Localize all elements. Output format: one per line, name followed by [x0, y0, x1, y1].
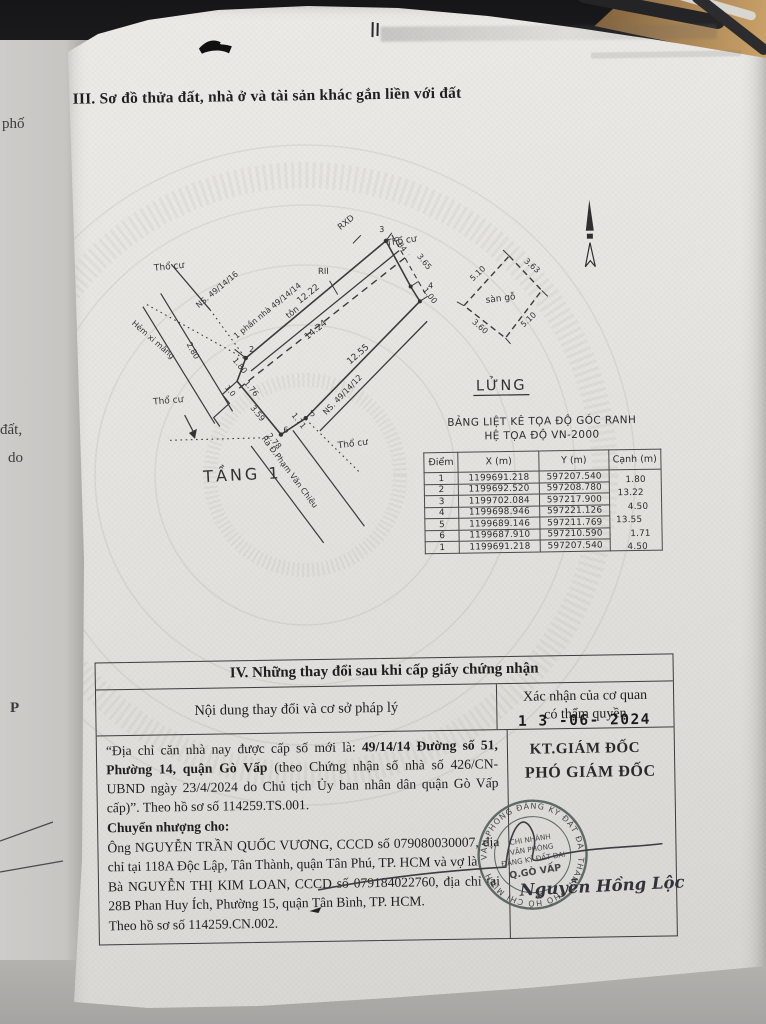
point-number: 2: [249, 345, 254, 354]
column-header: X (m): [458, 451, 539, 472]
pen-tick-marks: [371, 22, 383, 38]
transferee-husband: Ông NGUYỄN TRẦN QUỐC VƯƠNG, CCCD số 0790…: [107, 832, 500, 876]
measure-label: 1.0: [223, 383, 238, 398]
address-change-paragraph: “Địa chỉ căn nhà nay được cấp số mới là:…: [106, 735, 499, 817]
paragraph-text: “Địa chỉ căn nhà nay được cấp số mới là:: [106, 739, 362, 758]
measure-label: 3.59: [248, 404, 266, 424]
cell-y: 597207.540: [540, 539, 610, 552]
cell-point: 6: [425, 530, 459, 542]
signer-title-line2: PHÓ GIÁM ĐỐC: [496, 762, 684, 783]
measure-label: 3.60: [470, 317, 489, 335]
cell-y: 597217.900: [540, 493, 610, 506]
boundary-code-label: RXD: [336, 213, 357, 233]
street-label: Ra Đ.Phạm Văn Chiêu: [259, 434, 320, 511]
measure-label: 2.80: [185, 341, 201, 361]
alley-label: Hẻm xi măng: [130, 318, 177, 361]
cell-x: 1199689.146: [459, 517, 540, 530]
measure-label: 12.22: [295, 283, 321, 307]
mezzanine-floor-label: sàn gỗ: [485, 291, 517, 306]
column-header-content: Nội dung thay đổi và cơ sở pháp lý: [96, 684, 498, 735]
land-label: Thổ cư: [336, 437, 370, 452]
measure-label: 5.10: [519, 310, 538, 329]
measure-label: 5.10: [468, 264, 487, 283]
measure-label: 14.24: [303, 318, 330, 342]
edge-length: 13.55: [616, 515, 642, 525]
date-stamp: 1 3 -06- 2024: [500, 711, 668, 730]
roof-material-label: tôn: [284, 304, 302, 321]
signer-title-line1: KT.GIÁM ĐỐC: [496, 739, 674, 759]
measure-label: 0.84: [391, 235, 409, 254]
cell-y: 597221.126: [540, 505, 610, 518]
mezzanine-outline: [456, 249, 549, 395]
coordinate-table: Điểm X (m) Y (m) Cạnh (m) 1 1199691.218 …: [423, 449, 663, 554]
house-part-label: 1 phần nhà 49/14/14: [231, 280, 303, 340]
cell-x: 1199698.946: [459, 506, 540, 519]
cell-y: 597208.780: [539, 482, 609, 495]
measure-label: 2.78: [265, 431, 283, 451]
cell-x: 1199702.084: [459, 494, 540, 507]
cell-point: 2: [424, 484, 458, 496]
measure-label: 1.76: [242, 379, 260, 399]
measure-label: 1.00: [421, 286, 439, 306]
cell-y: 597207.540: [539, 470, 609, 483]
edge-length: 13.22: [618, 488, 644, 498]
scan-smudge: [381, 24, 717, 42]
cell-point: 1: [424, 473, 458, 485]
cell-edge-lengths: 1.80 13.22 4.50 13.55 1.71 4.50: [609, 469, 663, 550]
measure-label: 3.63: [522, 256, 541, 274]
neighbor-house-label: NS. 49/14/12: [321, 373, 364, 417]
edge-length: 4.50: [627, 542, 648, 552]
point-number: 3: [379, 225, 384, 234]
cell-y: 597210.590: [540, 528, 610, 541]
floor1-plot-lines: [142, 232, 432, 545]
land-label: Thổ cư: [385, 233, 419, 249]
coordinate-table-block: BẢNG LIỆT KÊ TỌA ĐỘ GÓC RANH HỆ TỌA ĐỘ V…: [419, 414, 667, 555]
cell-x: 1199691.218: [459, 540, 540, 553]
ink-mark: [199, 40, 232, 54]
change-content-text: “Địa chỉ căn nhà nay được cấp số mới là:…: [97, 730, 511, 945]
mezzanine-caption: LỬNG: [476, 376, 527, 395]
scanned-document-photo: phố đất, do P III. Sơ đồ thửa đất, nhà ở…: [0, 0, 766, 1024]
land-label: Thổ cư: [152, 394, 185, 408]
measure-label: 1.80: [231, 356, 249, 376]
cell-y: 597211.769: [540, 516, 610, 529]
transferee-wife: Bà NGUYỄN THỊ KIM LOAN, CCCD số 07918402…: [108, 871, 501, 915]
edge-length: 1.80: [625, 475, 646, 485]
cell-x: 1199687.910: [459, 529, 540, 542]
boundary-code-label: RII: [318, 267, 329, 277]
cell-point: 5: [425, 519, 459, 531]
coordinate-table-title: BẢNG LIỆT KÊ TỌA ĐỘ GÓC RANH HỆ TỌA ĐỘ V…: [419, 414, 665, 445]
floor1-caption: TẦNG 1: [202, 461, 282, 486]
cell-x: 1199692.520: [459, 483, 540, 496]
column-header: Cạnh (m): [608, 449, 661, 470]
point-number: 5: [310, 409, 315, 418]
page-content: III. Sơ đồ thửa đất, nhà ở và tài sản kh…: [0, 0, 766, 1024]
cell-point: 3: [424, 496, 458, 508]
column-header: Y (m): [539, 450, 609, 471]
point-number: 6: [283, 425, 288, 434]
measure-label: 1.71: [290, 411, 308, 431]
measure-label: 12.55: [345, 343, 371, 367]
column-header: Điểm: [424, 453, 459, 474]
cell-point: 4: [425, 507, 459, 519]
edge-length: 1.71: [630, 529, 651, 539]
section3-title: III. Sơ đồ thửa đất, nhà ở và tài sản kh…: [73, 83, 543, 108]
cell-x: 1199691.218: [458, 471, 539, 484]
land-label: Thổ cư: [152, 260, 185, 274]
measure-label: 3.65: [415, 252, 433, 272]
plot-point-dots: [186, 238, 424, 439]
neighbor-house-label: NS. 49/14/16: [194, 269, 240, 309]
point-number: 4: [428, 281, 433, 290]
scan-smudge: [591, 50, 741, 58]
edge-length: 4.50: [628, 502, 649, 512]
north-arrow-icon: [584, 200, 595, 267]
cell-point: 1: [425, 542, 459, 554]
